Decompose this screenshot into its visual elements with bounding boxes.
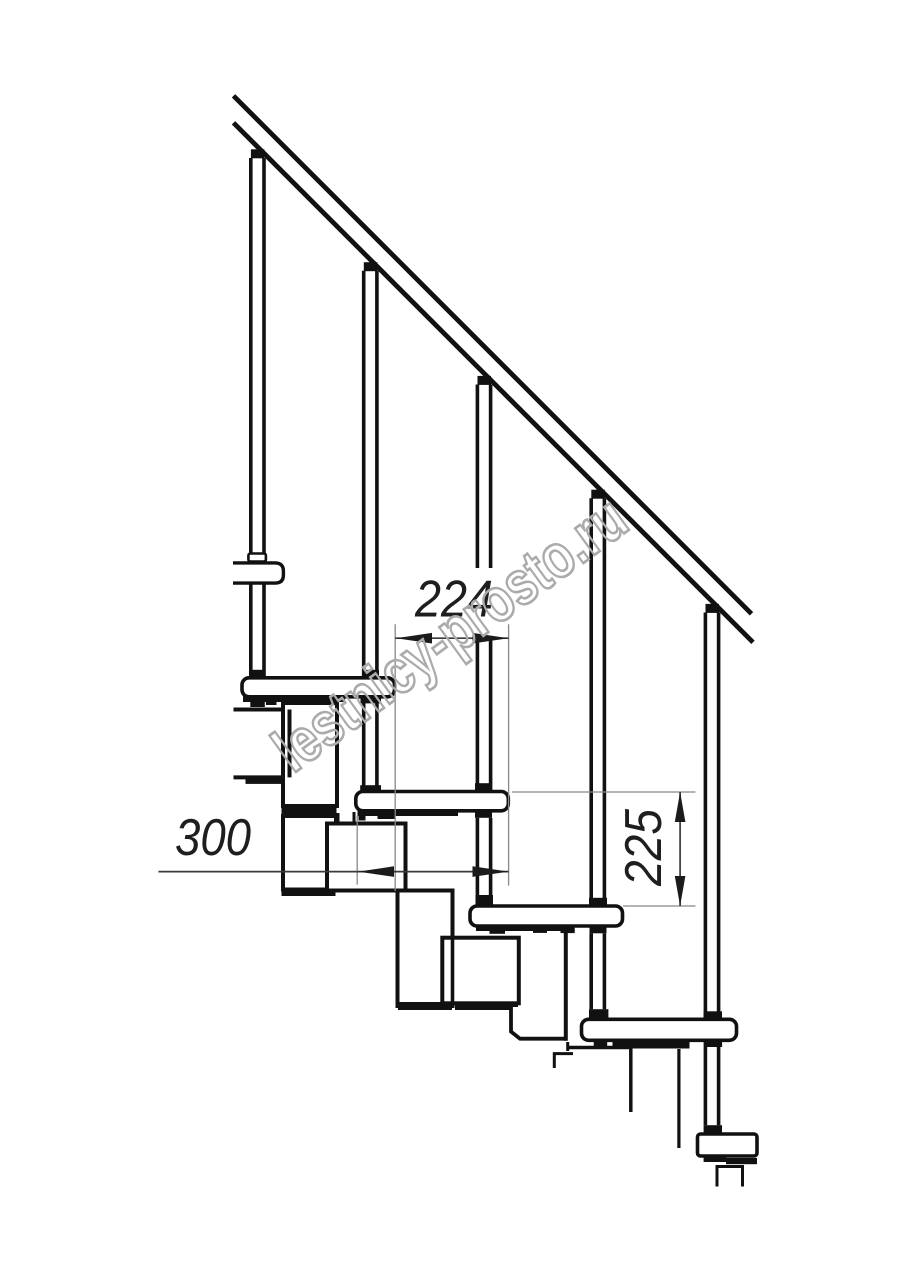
svg-text:300: 300	[175, 809, 251, 867]
svg-text:225: 225	[615, 808, 673, 887]
